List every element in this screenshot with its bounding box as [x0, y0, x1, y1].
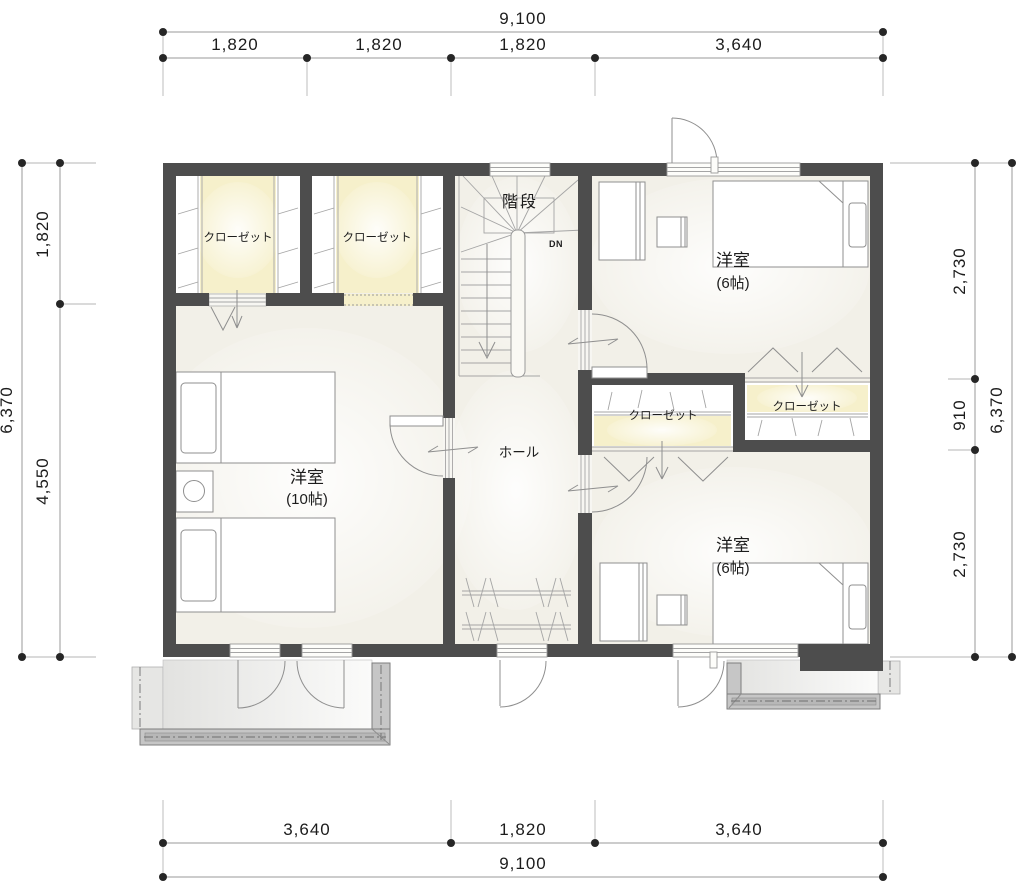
window-hall-bottom — [497, 644, 547, 707]
dim-left-total: 6,370 — [0, 386, 16, 434]
room-10-label: 洋室 — [290, 468, 324, 487]
window-handle — [710, 652, 717, 668]
dim-bottom-seg1: 3,640 — [283, 820, 331, 839]
dim-top-total: 9,100 — [499, 9, 547, 28]
dim-bottom-seg3: 3,640 — [715, 820, 763, 839]
window-stairs-top — [490, 163, 550, 176]
dim-right-seg2: 910 — [950, 399, 969, 430]
door-leaf — [390, 416, 443, 426]
closet-2-open-sill — [344, 294, 413, 306]
dim-bottom-seg2: 1,820 — [499, 820, 547, 839]
stairs-dn-label: DN — [549, 239, 563, 249]
pillow — [849, 203, 866, 247]
dimension-bottom: 3,640 1,820 3,640 9,100 — [159, 800, 887, 881]
balcony-left-overhang — [132, 667, 163, 729]
dimension-right: 2,730 910 2,730 6,370 — [890, 159, 1016, 661]
hall-label: ホール — [499, 445, 540, 460]
closet-top-left-2: クローゼット — [312, 176, 443, 293]
stairs-label: 階段 — [502, 193, 538, 211]
dim-left-seg2: 4,550 — [33, 457, 52, 505]
dimension-left: 6,370 1,820 4,550 — [0, 159, 96, 661]
dim-top-seg1: 1,820 — [211, 35, 259, 54]
window-handle — [711, 157, 718, 173]
pillow — [181, 383, 216, 453]
door-leaf — [592, 367, 647, 378]
closet-label: クローゼット — [629, 409, 698, 422]
dim-top-seg4: 3,640 — [715, 35, 763, 54]
closet-label: クローゼット — [773, 400, 842, 413]
stair-stringer — [511, 230, 525, 377]
dim-right-seg3: 2,730 — [950, 530, 969, 578]
dim-top-seg3: 1,820 — [499, 35, 547, 54]
dim-bottom-total: 9,100 — [499, 854, 547, 873]
desk — [599, 182, 645, 260]
wall-extension — [800, 657, 883, 671]
closet-top-left-1: クローゼット — [176, 176, 300, 293]
room-upper-label: 洋室 — [716, 251, 750, 270]
room-lower-size: (6帖) — [716, 560, 749, 577]
pillow — [849, 585, 866, 629]
dim-top-seg2: 1,820 — [355, 35, 403, 54]
dim-right-total: 6,370 — [987, 386, 1006, 434]
closet-label: クローゼット — [204, 231, 273, 244]
window-upper-right-top — [667, 118, 800, 176]
closet-label: クローゼット — [343, 231, 412, 244]
dim-left-seg1: 1,820 — [33, 210, 52, 258]
floor-plan-drawing: 9,100 1,820 1,820 1,820 3,640 3,640 1,82… — [0, 0, 1024, 882]
casement-swing — [672, 118, 717, 163]
room-upper-size: (6帖) — [716, 275, 749, 292]
chair — [657, 217, 687, 247]
bedside-table — [176, 471, 213, 512]
balcony-left-floor — [163, 660, 372, 730]
room-10-size: (10帖) — [286, 491, 328, 508]
pillow — [181, 530, 216, 601]
floor-plan-page: 9,100 1,820 1,820 1,820 3,640 3,640 1,82… — [0, 0, 1024, 882]
casement-swing — [500, 661, 546, 707]
dimension-top: 9,100 1,820 1,820 1,820 3,640 — [159, 9, 887, 96]
room-lower-label: 洋室 — [716, 536, 750, 555]
chair — [657, 595, 687, 625]
dim-right-seg1: 2,730 — [950, 247, 969, 295]
desk — [600, 563, 647, 641]
